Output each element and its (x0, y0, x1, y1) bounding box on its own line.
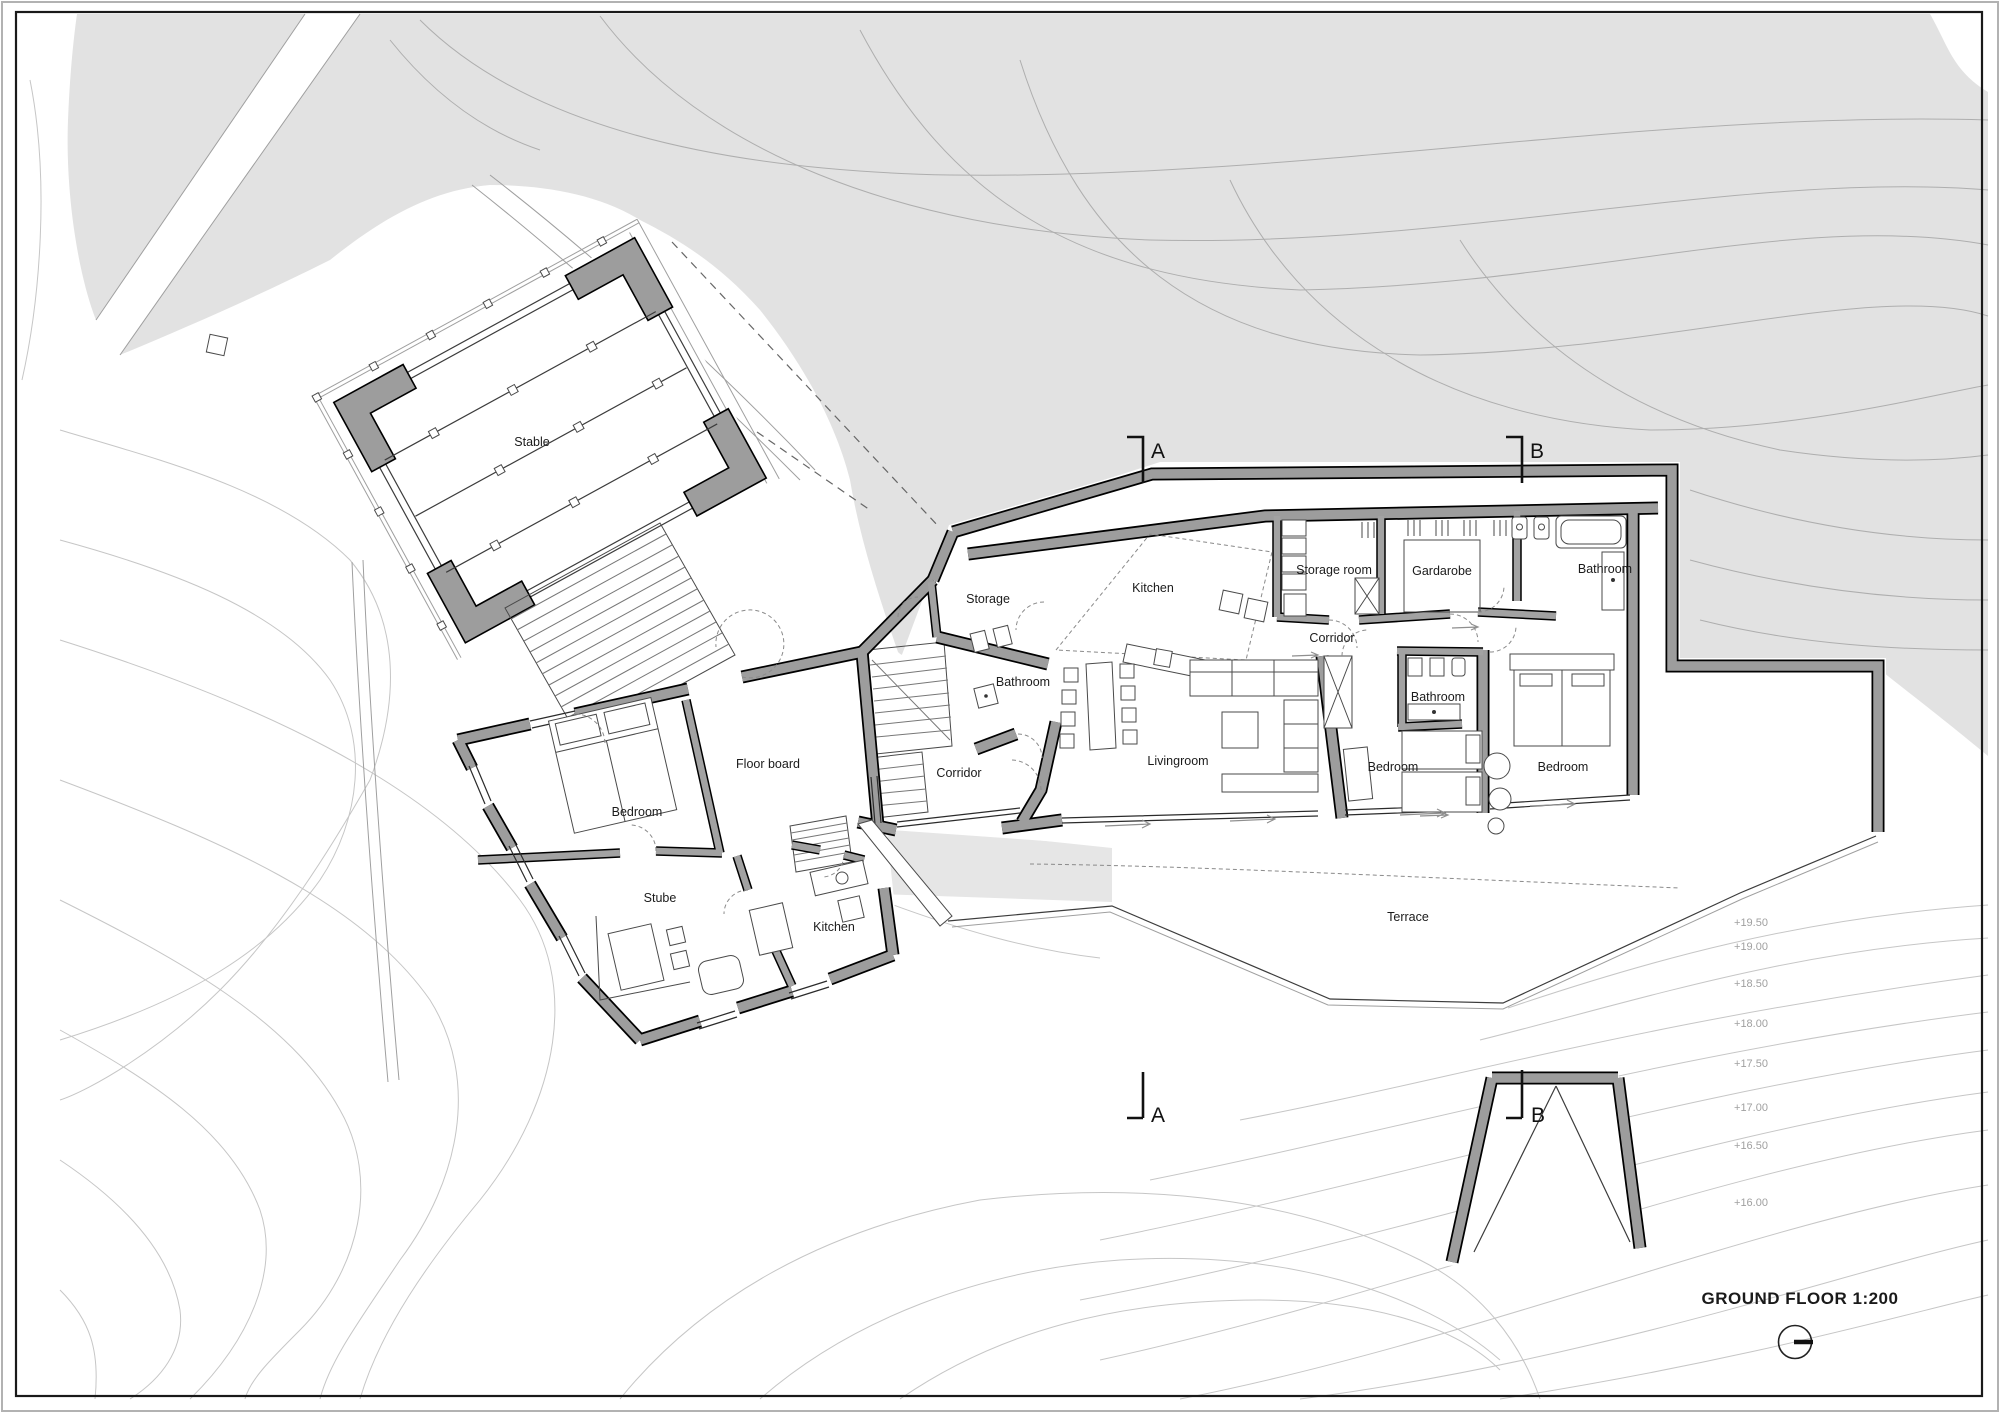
room-label-gardarobe: Gardarobe (1412, 564, 1472, 578)
coffee-table (1222, 712, 1258, 748)
room-label-stable: Stable (514, 435, 549, 449)
desk (1343, 747, 1372, 801)
sink (1430, 658, 1444, 676)
elevation-label: +18.50 (1734, 978, 1768, 990)
room-label-floor-board: Floor board (736, 757, 800, 771)
sofa (1190, 660, 1318, 696)
washer (1284, 594, 1306, 616)
room-label-bedroom-right: Bedroom (1538, 760, 1589, 774)
room-label-conn-bathroom: Bathroom (996, 675, 1050, 689)
north-indicator-icon (1779, 1326, 1814, 1359)
room-label-new-kitchen: Kitchen (1132, 581, 1174, 595)
floor-plan-canvas: A B A B Stable Bedroom Floor board Stube… (0, 0, 2000, 1413)
room-label-old-bedroom: Bedroom (612, 805, 663, 819)
elevation-label: +19.50 (1734, 917, 1768, 929)
room-label-bedroom-mid: Bedroom (1368, 760, 1419, 774)
room-label-bathroom-mid: Bathroom (1411, 690, 1465, 704)
room-label-livingroom: Livingroom (1147, 754, 1208, 768)
well-marker (206, 334, 227, 355)
sink (1408, 658, 1422, 676)
section-a-bottom-label: A (1151, 1104, 1165, 1127)
room-label-new-corridor: Corridor (1309, 631, 1354, 645)
elevation-label: +18.00 (1734, 1018, 1768, 1030)
elevation-label: +19.00 (1734, 941, 1768, 953)
kitchen-sink (1154, 649, 1173, 668)
elevation-label: +17.00 (1734, 1102, 1768, 1114)
dining-table (1086, 662, 1116, 750)
room-label-bathroom-top: Bathroom (1578, 562, 1632, 576)
kitchen-appliance (1219, 590, 1243, 614)
drawing-title: GROUND FLOOR 1:200 (1702, 1289, 1899, 1308)
stool (1489, 788, 1511, 810)
room-label-stube: Stube (644, 891, 677, 905)
elevation-label: +16.50 (1734, 1140, 1768, 1152)
room-label-terrace: Terrace (1387, 910, 1429, 924)
bidet (1534, 517, 1549, 539)
section-b-bottom-label: B (1531, 1104, 1545, 1127)
elevation-label: +17.50 (1734, 1058, 1768, 1070)
stool (1484, 753, 1510, 779)
sofa-chaise (1284, 700, 1318, 772)
room-label-old-corridor: Corridor (936, 766, 981, 780)
room-label-old-kitchen: Kitchen (813, 920, 855, 934)
elevation-labels: +19.50 +19.00 +18.50 +18.00 +17.50 +17.0… (1734, 917, 1768, 1209)
elevation-label: +16.00 (1734, 1197, 1768, 1209)
section-a-bottom-mark (1127, 1072, 1143, 1118)
room-label-storage-room: Storage room (1296, 563, 1372, 577)
sideboard (1222, 774, 1318, 792)
section-a-top-label: A (1151, 440, 1165, 463)
toilet (1512, 517, 1527, 539)
section-b-top-label: B (1530, 440, 1544, 463)
kitchen-appliance (1244, 598, 1268, 622)
title-block: GROUND FLOOR 1:200 (1702, 1289, 1899, 1359)
stool (1488, 818, 1504, 834)
bed-headboard (1510, 654, 1614, 670)
toilet (1452, 658, 1465, 676)
room-label-storage: Storage (966, 592, 1010, 606)
floor-plan-sheet: A B A B Stable Bedroom Floor board Stube… (0, 0, 2000, 1413)
